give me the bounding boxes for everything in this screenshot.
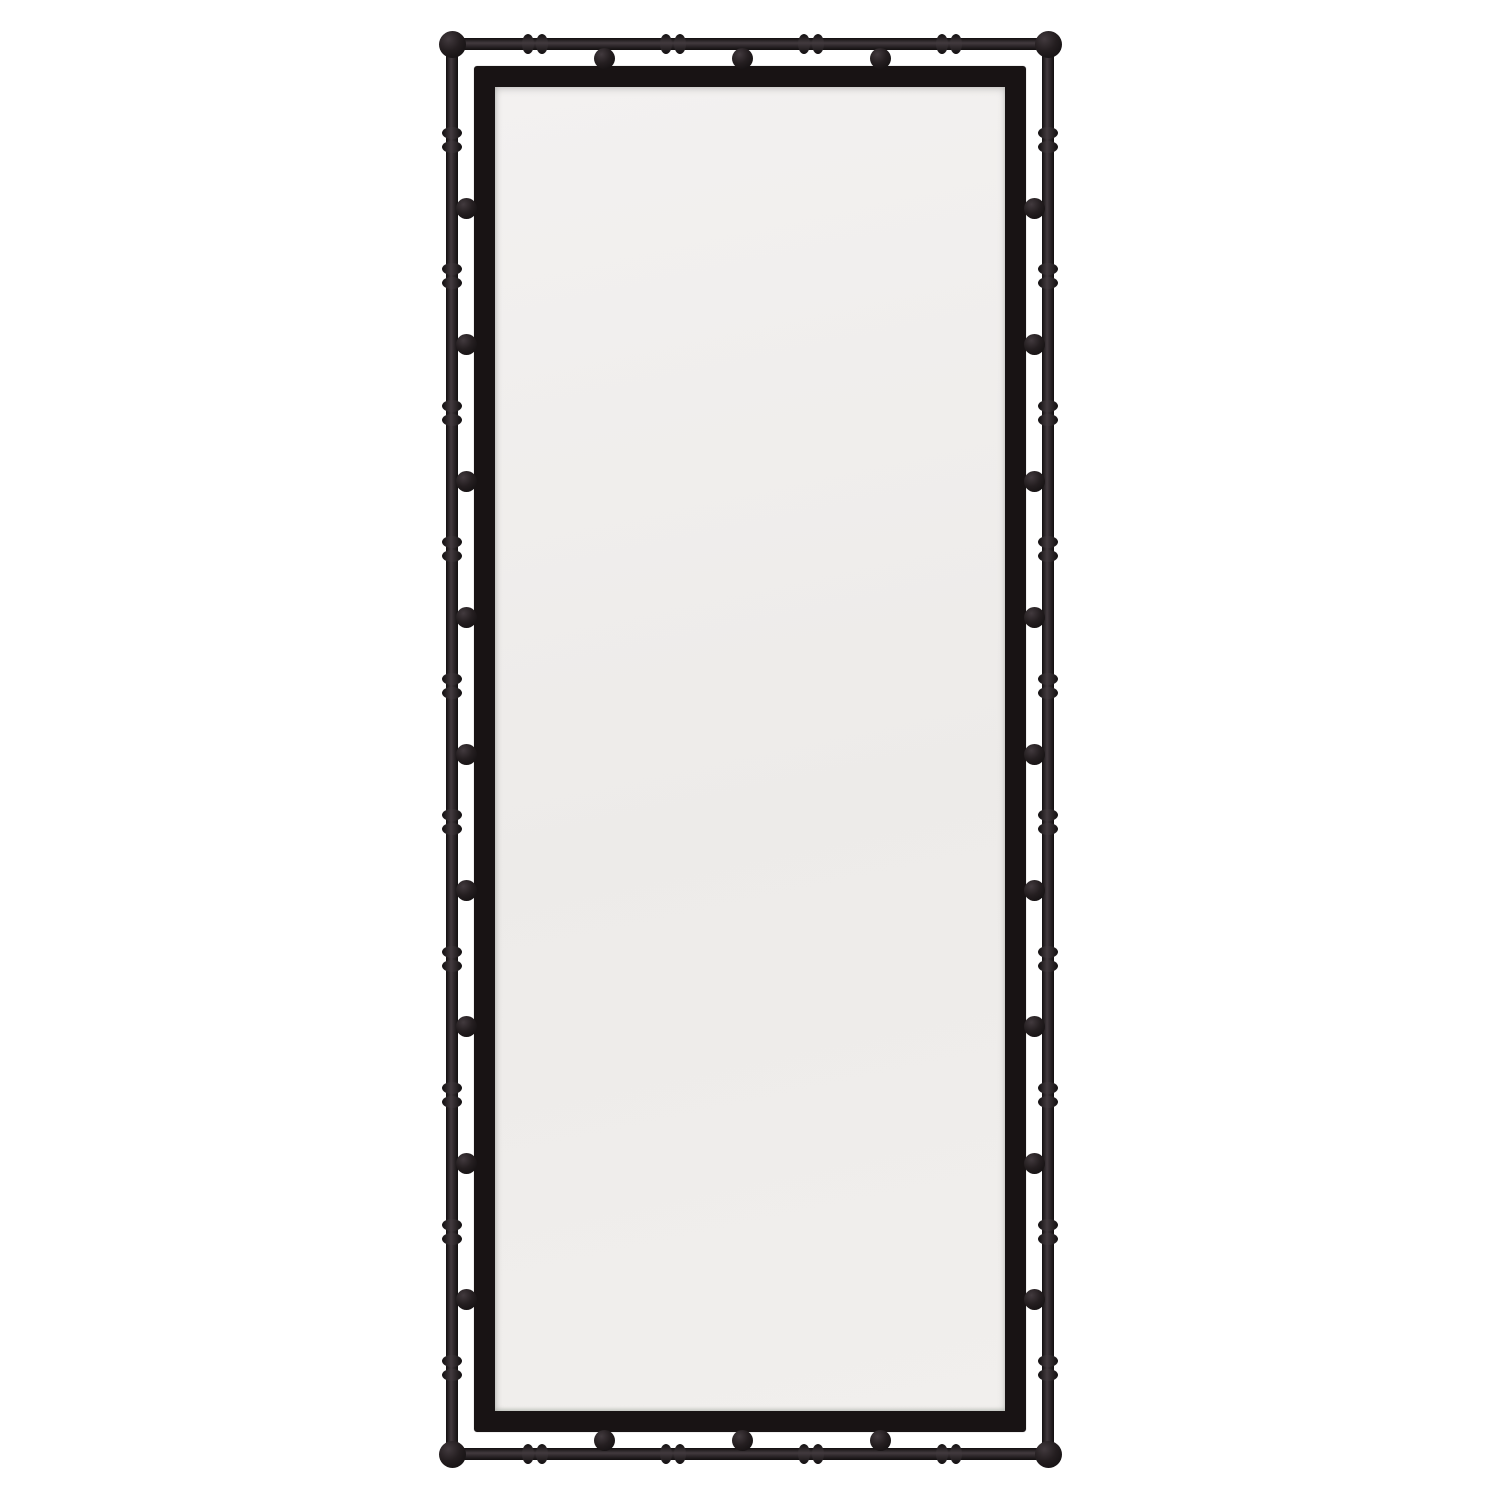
ring-lobe xyxy=(950,34,962,54)
ring-lobe xyxy=(442,1369,462,1381)
bamboo-node-ring xyxy=(1038,263,1058,289)
ring-lobe xyxy=(442,687,462,699)
bamboo-node-ring xyxy=(522,1444,548,1464)
ring-lobe xyxy=(442,141,462,153)
ring-lobe xyxy=(1038,263,1058,275)
ring-lobe xyxy=(442,946,462,958)
bamboo-node-ring xyxy=(936,34,962,54)
rail-ball-connector xyxy=(594,1430,615,1451)
bamboo-node-ring xyxy=(798,34,824,54)
corner-ball-joint xyxy=(439,31,466,58)
ring-lobe xyxy=(660,1444,672,1464)
mirror-frame xyxy=(474,66,1026,1432)
ring-lobe xyxy=(674,34,686,54)
ring-lobe xyxy=(812,34,824,54)
faux-bamboo-mirror xyxy=(0,0,1500,1500)
side-ball-connector xyxy=(456,880,477,901)
ring-lobe xyxy=(442,673,462,685)
rail-ball-connector xyxy=(594,48,615,69)
ring-lobe xyxy=(442,277,462,289)
ring-lobe xyxy=(442,1355,462,1367)
ring-lobe xyxy=(536,1444,548,1464)
corner-ball-joint xyxy=(1035,31,1062,58)
ring-lobe xyxy=(442,960,462,972)
side-ball-connector xyxy=(1024,1289,1045,1310)
bamboo-node-ring xyxy=(660,34,686,54)
ring-lobe xyxy=(442,1096,462,1108)
ring-lobe xyxy=(536,34,548,54)
side-ball-connector xyxy=(1024,744,1045,765)
side-ball-connector xyxy=(456,1153,477,1174)
side-ball-connector xyxy=(456,198,477,219)
bamboo-node-ring xyxy=(1038,673,1058,699)
ring-lobe xyxy=(1038,946,1058,958)
bamboo-node-ring xyxy=(522,34,548,54)
ring-lobe xyxy=(1038,536,1058,548)
ring-lobe xyxy=(1038,550,1058,562)
ring-lobe xyxy=(812,1444,824,1464)
bamboo-node-ring xyxy=(442,1355,462,1381)
side-ball-connector xyxy=(1024,1153,1045,1174)
side-ball-connector xyxy=(456,334,477,355)
side-ball-connector xyxy=(1024,880,1045,901)
ring-lobe xyxy=(936,1444,948,1464)
ring-lobe xyxy=(1038,400,1058,412)
ring-lobe xyxy=(1038,414,1058,426)
rail-ball-connector xyxy=(732,1430,753,1451)
bamboo-node-ring xyxy=(798,1444,824,1464)
ring-lobe xyxy=(442,536,462,548)
ring-lobe xyxy=(442,1233,462,1245)
ring-lobe xyxy=(442,400,462,412)
ring-lobe xyxy=(674,1444,686,1464)
bamboo-node-ring xyxy=(442,400,462,426)
ring-lobe xyxy=(950,1444,962,1464)
side-ball-connector xyxy=(1024,1016,1045,1037)
ring-lobe xyxy=(660,34,672,54)
ring-lobe xyxy=(798,34,810,54)
bamboo-node-ring xyxy=(442,536,462,562)
side-ball-connector xyxy=(456,1289,477,1310)
bamboo-node-ring xyxy=(1038,400,1058,426)
ring-lobe xyxy=(442,127,462,139)
side-ball-connector xyxy=(1024,198,1045,219)
ring-lobe xyxy=(1038,673,1058,685)
bamboo-node-ring xyxy=(442,1219,462,1245)
ring-lobe xyxy=(936,34,948,54)
bamboo-node-ring xyxy=(442,809,462,835)
bamboo-node-ring xyxy=(1038,1219,1058,1245)
rail-ball-connector xyxy=(732,48,753,69)
side-ball-connector xyxy=(456,607,477,628)
side-ball-connector xyxy=(456,471,477,492)
ring-lobe xyxy=(1038,1096,1058,1108)
ring-lobe xyxy=(442,823,462,835)
bamboo-node-ring xyxy=(1038,946,1058,972)
ring-lobe xyxy=(442,809,462,821)
mirror-glass xyxy=(495,87,1005,1411)
side-ball-connector xyxy=(456,744,477,765)
rail-ball-connector xyxy=(870,1430,891,1451)
side-ball-connector xyxy=(1024,471,1045,492)
ring-lobe xyxy=(442,414,462,426)
ring-lobe xyxy=(1038,1219,1058,1231)
ring-lobe xyxy=(1038,1355,1058,1367)
side-ball-connector xyxy=(456,1016,477,1037)
ring-lobe xyxy=(442,550,462,562)
bamboo-node-ring xyxy=(442,1082,462,1108)
side-ball-connector xyxy=(1024,334,1045,355)
bamboo-node-ring xyxy=(1038,809,1058,835)
ring-lobe xyxy=(442,263,462,275)
ring-lobe xyxy=(1038,823,1058,835)
ring-lobe xyxy=(1038,277,1058,289)
bamboo-node-ring xyxy=(1038,1082,1058,1108)
ring-lobe xyxy=(1038,1233,1058,1245)
ring-lobe xyxy=(1038,687,1058,699)
ring-lobe xyxy=(522,34,534,54)
ring-lobe xyxy=(1038,1369,1058,1381)
bamboo-node-ring xyxy=(442,263,462,289)
ring-lobe xyxy=(1038,809,1058,821)
ring-lobe xyxy=(442,1219,462,1231)
ring-lobe xyxy=(522,1444,534,1464)
bamboo-node-ring xyxy=(442,673,462,699)
rail-ball-connector xyxy=(870,48,891,69)
ring-lobe xyxy=(1038,141,1058,153)
product-photo-canvas xyxy=(0,0,1500,1500)
bamboo-node-ring xyxy=(1038,127,1058,153)
bamboo-node-ring xyxy=(1038,536,1058,562)
corner-ball-joint xyxy=(439,1441,466,1468)
ring-lobe xyxy=(1038,960,1058,972)
bamboo-node-ring xyxy=(442,946,462,972)
ring-lobe xyxy=(442,1082,462,1094)
ring-lobe xyxy=(1038,1082,1058,1094)
bamboo-node-ring xyxy=(660,1444,686,1464)
bamboo-node-ring xyxy=(442,127,462,153)
bamboo-node-ring xyxy=(1038,1355,1058,1381)
bamboo-node-ring xyxy=(936,1444,962,1464)
side-ball-connector xyxy=(1024,607,1045,628)
ring-lobe xyxy=(798,1444,810,1464)
corner-ball-joint xyxy=(1035,1441,1062,1468)
ring-lobe xyxy=(1038,127,1058,139)
